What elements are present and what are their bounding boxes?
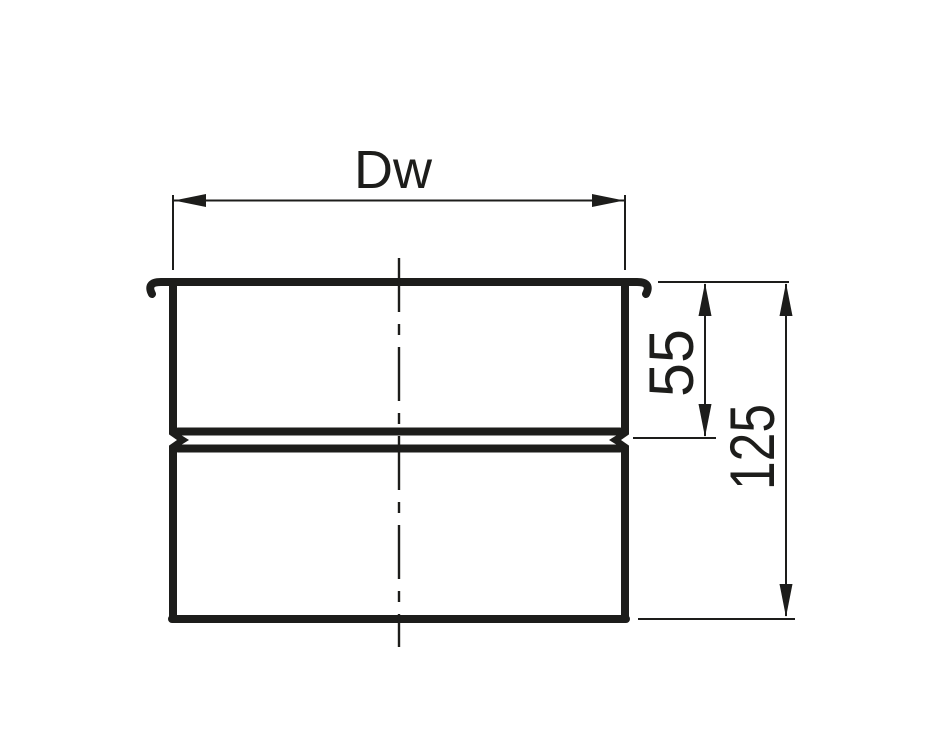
pipe-adapter-drawing: Dw 55 125 (0, 0, 931, 741)
dim-width-arrow-right (592, 194, 624, 207)
dim-total-height-arrow-up (780, 283, 793, 316)
dim-total-height-arrow-down (780, 584, 793, 617)
dim-width-arrow-left (174, 194, 206, 207)
dim-upper-height-arrow-up (699, 283, 712, 316)
dim-upper-height: 55 (637, 283, 711, 437)
dim-upper-height-arrow-down (699, 404, 712, 437)
dim-total-height: 125 (718, 283, 792, 617)
dim-upper-height-label: 55 (637, 329, 707, 397)
dim-width: Dw (173, 140, 625, 270)
dim-width-label: Dw (354, 140, 433, 200)
technical-drawing-canvas: Dw 55 125 (0, 0, 931, 741)
dim-total-height-label: 125 (718, 404, 788, 490)
